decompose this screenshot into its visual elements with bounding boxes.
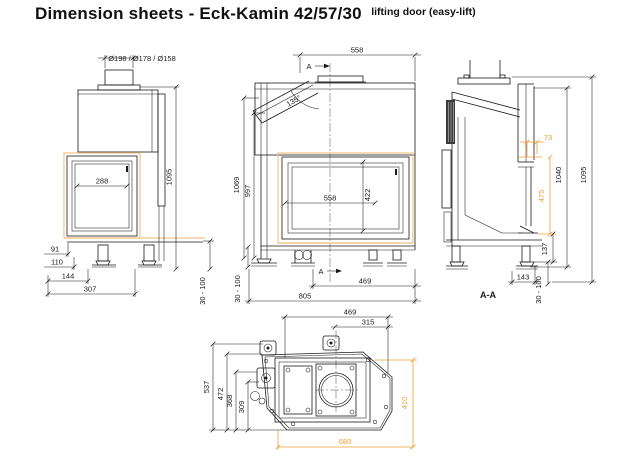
top-dim-680: 680 [276, 430, 416, 450]
dim-label-foot-range: 30 - 100 [198, 277, 207, 305]
dim-label-307: 307 [84, 285, 97, 294]
front-foot-range-dim: 30 - 100 [198, 239, 214, 305]
dim-label-foot-range-section: 30 - 100 [534, 276, 543, 304]
dim-label-1040: 1040 [554, 167, 563, 184]
section-dim-137: 137 [534, 232, 557, 265]
section-profile [442, 60, 542, 269]
dim-label-680: 680 [339, 437, 352, 446]
front-flue-dim: Ø198 / Ø178 / Ø158 [98, 54, 176, 68]
dim-label-475: 475 [537, 190, 546, 203]
front-height-dim: 1095 [140, 85, 179, 272]
front-firebox: 288 [64, 153, 140, 238]
dim-label-91: 91 [51, 245, 59, 254]
side-view-drawing: 558 A 135° [235, 45, 435, 315]
section-dim-73: 73 [518, 133, 552, 157]
front-view-drawing: Ø198 / Ø178 / Ø158 288 [40, 45, 240, 310]
dim-label-137: 137 [540, 243, 549, 256]
dim-label-805: 805 [299, 292, 312, 301]
dim-label-glass-height: 422 [363, 189, 372, 202]
section-marker-a-top: A [306, 62, 311, 71]
dim-label-143: 143 [517, 273, 530, 282]
dim-label-glass-width: 288 [96, 177, 109, 186]
dim-label-1095-section: 1095 [579, 167, 588, 184]
dim-label-472: 472 [216, 388, 225, 401]
front-base-legs [64, 206, 205, 267]
top-dim-410: 410 [375, 358, 417, 450]
top-plate [262, 330, 392, 430]
page-subtitle: lifting door (easy-lift) [371, 6, 475, 18]
dim-label-537: 537 [202, 381, 211, 394]
dim-label-469-side: 469 [359, 277, 372, 286]
section-dim-1040: 1040 [530, 86, 571, 270]
dim-label-73: 73 [544, 133, 552, 142]
dim-label-410: 410 [400, 397, 409, 410]
section-label: A-A [480, 290, 496, 300]
dim-label-309: 309 [237, 401, 246, 414]
page-header: Dimension sheets - Eck-Kamin 42/57/30 li… [35, 4, 476, 24]
section-marker-a-bottom: A [318, 267, 323, 276]
dim-label-flue-diameters: Ø198 / Ø178 / Ø158 [108, 54, 176, 63]
dim-label-315: 315 [362, 318, 375, 327]
top-view-drawing: 469 315 [205, 308, 435, 460]
section-view-drawing: 73 475 137 30 - 100 143 [430, 50, 615, 310]
side-section-marker-top: A [306, 62, 330, 282]
front-body [78, 70, 165, 206]
side-base-legs [251, 155, 415, 266]
dim-label-foot-range-side: 30 - 100 [233, 275, 242, 303]
dim-label-997: 997 [243, 185, 252, 198]
dim-label-total-height: 1095 [165, 169, 174, 186]
dim-label-110: 110 [51, 258, 63, 267]
side-body [255, 83, 415, 250]
dim-label-469-top: 469 [344, 308, 357, 317]
dim-label-144: 144 [62, 272, 75, 281]
dim-label-glass-width-side: 558 [324, 194, 337, 203]
dim-label-1069: 1069 [232, 177, 241, 194]
dim-label-top-width: 558 [351, 46, 364, 55]
side-firebox: 558 422 [278, 153, 413, 243]
dim-label-368: 368 [225, 395, 234, 408]
dimension-sheet-page: Dimension sheets - Eck-Kamin 42/57/30 li… [0, 0, 624, 460]
front-left-dims: 91 110 144 307 [44, 243, 137, 297]
page-title: Dimension sheets - Eck-Kamin 42/57/30 [35, 4, 362, 23]
